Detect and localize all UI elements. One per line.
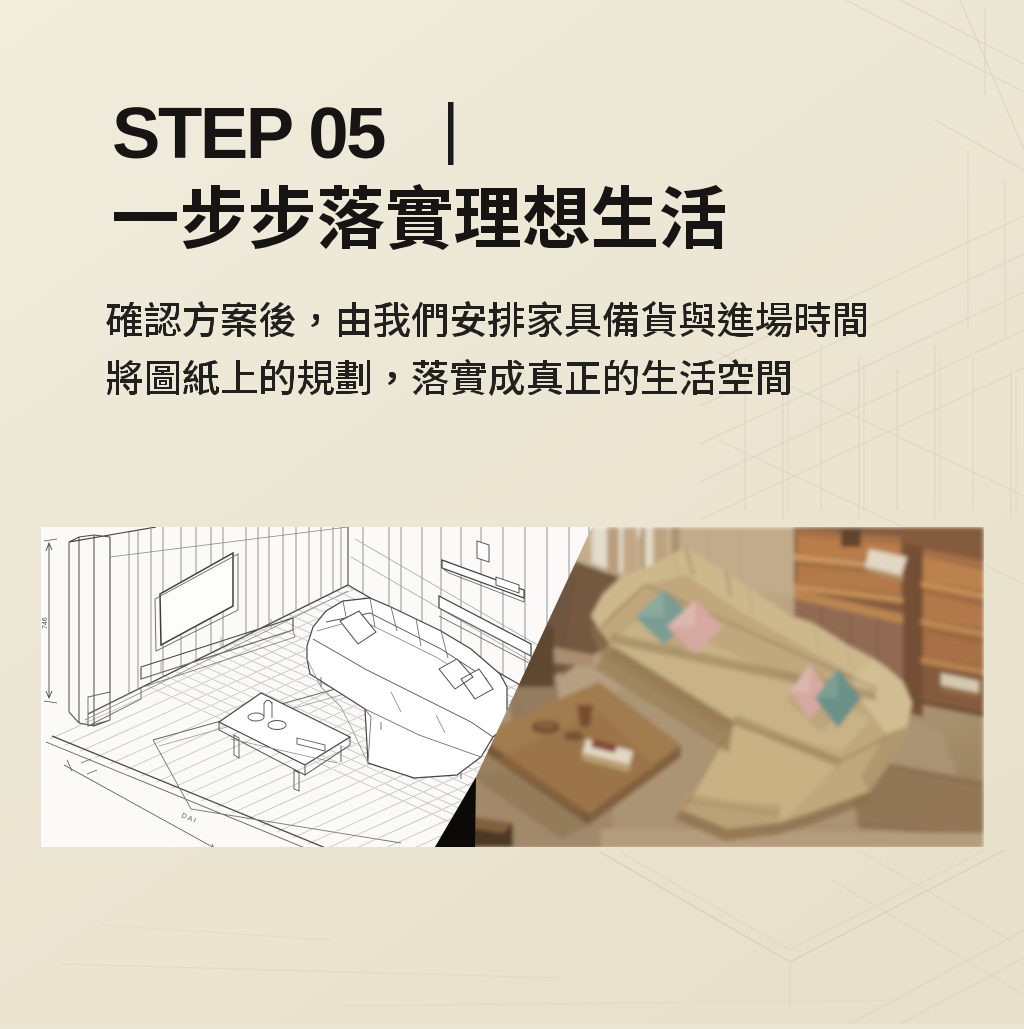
svg-text:746: 746	[42, 617, 49, 629]
svg-text:STEP 05: STEP 05	[112, 93, 385, 174]
